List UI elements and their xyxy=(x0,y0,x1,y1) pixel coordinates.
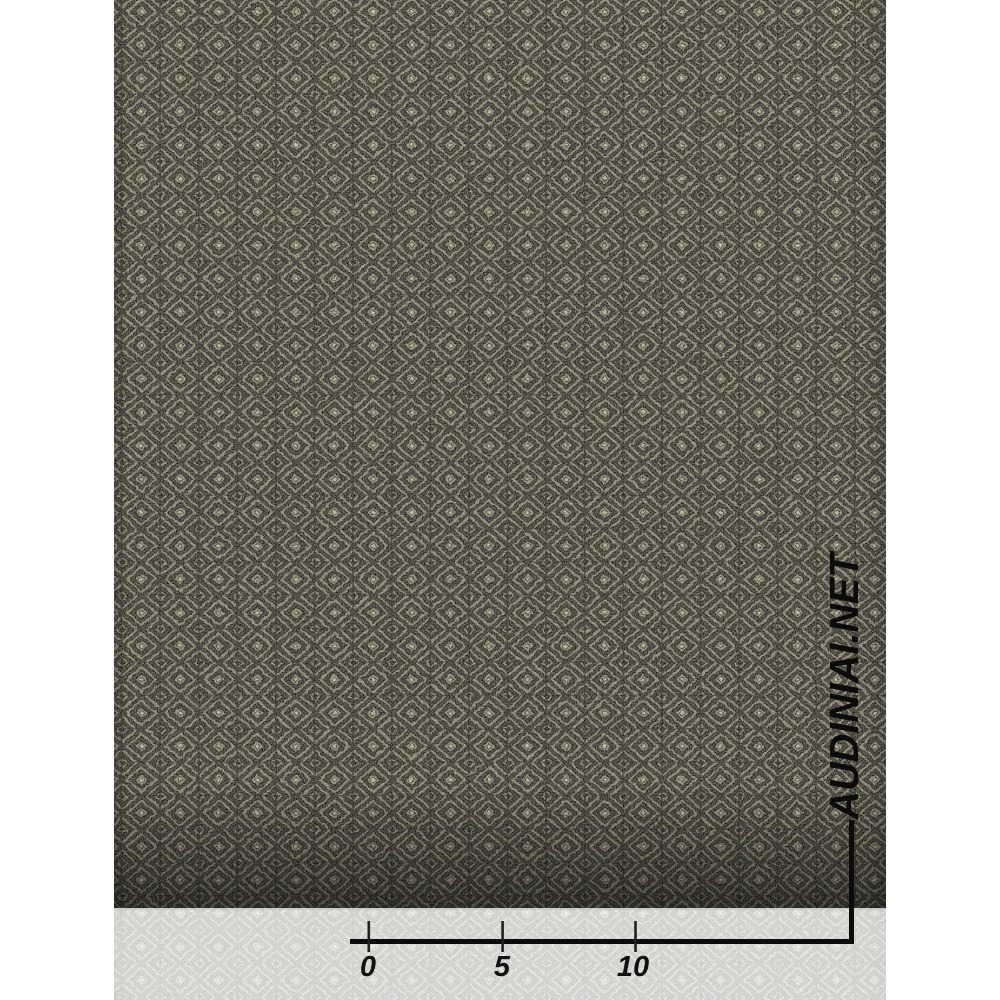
svg-text:10: 10 xyxy=(617,951,649,983)
svg-text:0: 0 xyxy=(360,951,376,983)
svg-text:AUDINIAI.NET: AUDINIAI.NET xyxy=(821,550,867,820)
svg-text:5: 5 xyxy=(494,951,511,983)
